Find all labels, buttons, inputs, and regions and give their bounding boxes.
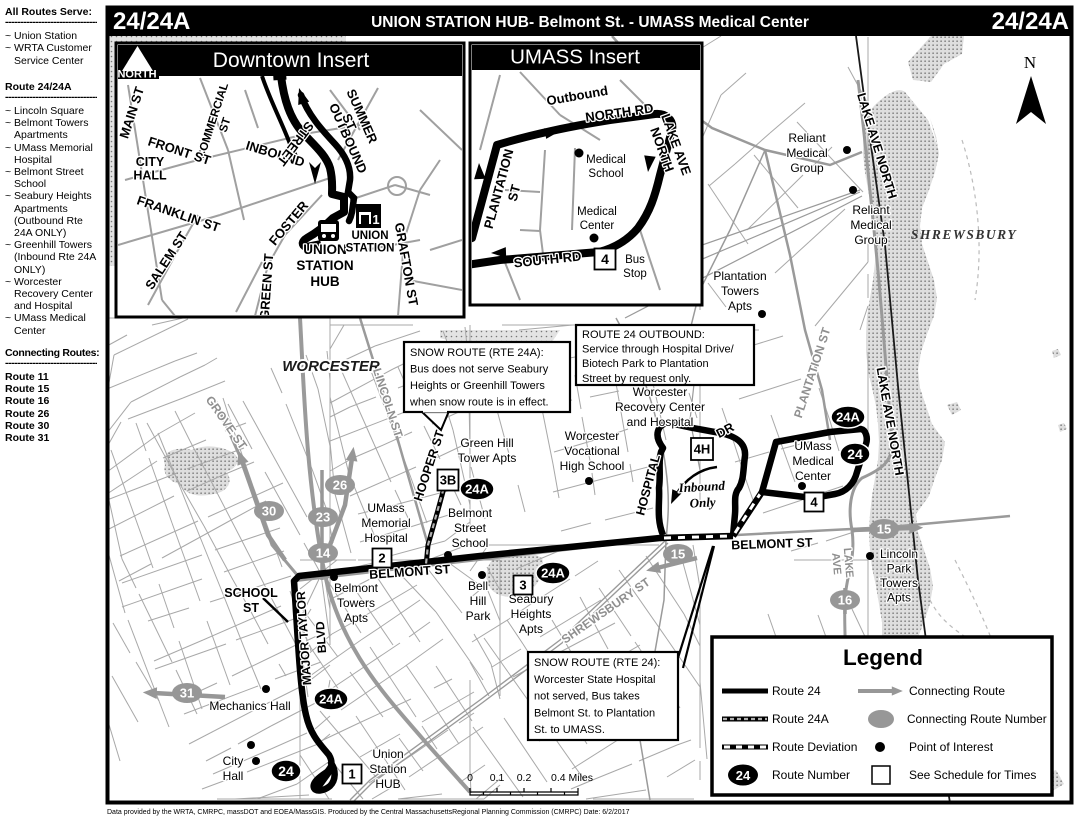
svg-text:3: 3 bbox=[519, 578, 526, 593]
svg-text:24: 24 bbox=[847, 446, 863, 462]
svg-text:0.1: 0.1 bbox=[490, 772, 505, 784]
svg-text:UMassMedicalCenter: UMassMedicalCenter bbox=[792, 439, 833, 483]
svg-text:Route 24A: Route 24A bbox=[772, 712, 829, 726]
svg-text:15: 15 bbox=[877, 522, 891, 537]
svg-text:23: 23 bbox=[316, 510, 330, 525]
svg-text:ReliantMedicalGroup: ReliantMedicalGroup bbox=[786, 131, 827, 175]
svg-text:WorcesterVocationalHigh School: WorcesterVocationalHigh School bbox=[560, 429, 625, 473]
svg-text:Route 24: Route 24 bbox=[772, 684, 821, 698]
svg-text:ReliantMedicalGroup: ReliantMedicalGroup bbox=[850, 203, 891, 247]
svg-text:24: 24 bbox=[736, 768, 751, 783]
svg-text:UNION STATION HUB- Belmont St.: UNION STATION HUB- Belmont St. - UMASS M… bbox=[371, 14, 809, 31]
svg-text:14: 14 bbox=[316, 546, 331, 561]
svg-text:Route Deviation: Route Deviation bbox=[772, 740, 857, 754]
svg-text:UNIONSTATION: UNIONSTATION bbox=[346, 230, 395, 255]
svg-text:24A: 24A bbox=[541, 566, 565, 581]
svg-text:Data provided by the WRTA, CMR: Data provided by the WRTA, CMRPC, massDO… bbox=[107, 809, 630, 816]
svg-text:4: 4 bbox=[601, 251, 609, 267]
svg-text:N: N bbox=[1024, 53, 1036, 72]
svg-text:26: 26 bbox=[333, 478, 347, 493]
svg-text:BLVD: BLVD bbox=[313, 621, 329, 654]
svg-text:24A: 24A bbox=[465, 482, 489, 497]
svg-text:CityHall: CityHall bbox=[223, 754, 244, 783]
svg-text:Point of Interest: Point of Interest bbox=[909, 740, 994, 754]
svg-text:31: 31 bbox=[180, 686, 194, 701]
svg-text:3B: 3B bbox=[440, 473, 457, 488]
svg-text:24/24A: 24/24A bbox=[992, 8, 1069, 35]
svg-text:BELMONT ST: BELMONT ST bbox=[731, 536, 813, 553]
svg-text:UMassMemorialHospital: UMassMemorialHospital bbox=[361, 501, 410, 545]
svg-text:16: 16 bbox=[838, 593, 852, 608]
svg-text:Route Number: Route Number bbox=[772, 768, 850, 782]
svg-text:1: 1 bbox=[348, 767, 355, 782]
svg-text:Green HillTower Apts: Green HillTower Apts bbox=[458, 436, 517, 465]
svg-text:Connecting Route: Connecting Route bbox=[909, 684, 1005, 698]
svg-text:0: 0 bbox=[467, 772, 473, 784]
svg-text:UMASS Insert: UMASS Insert bbox=[510, 46, 640, 69]
svg-text:24A: 24A bbox=[319, 692, 343, 707]
svg-text:Downtown Insert: Downtown Insert bbox=[213, 49, 370, 72]
svg-text:30: 30 bbox=[262, 504, 276, 519]
svg-text:Mechanics Hall: Mechanics Hall bbox=[209, 699, 290, 713]
svg-text:0.2: 0.2 bbox=[517, 772, 532, 784]
svg-text:CITYHALL: CITYHALL bbox=[133, 155, 167, 183]
svg-text:4H: 4H bbox=[694, 442, 711, 457]
svg-text:Legend: Legend bbox=[843, 645, 923, 670]
svg-text:4: 4 bbox=[810, 495, 818, 510]
svg-text:0.4 Miles: 0.4 Miles bbox=[551, 772, 593, 784]
svg-text:24/24A: 24/24A bbox=[113, 8, 190, 35]
svg-text:NORTH: NORTH bbox=[117, 69, 156, 81]
svg-text:15: 15 bbox=[671, 547, 685, 562]
svg-text:BelmontStreetSchool: BelmontStreetSchool bbox=[448, 506, 493, 550]
svg-text:WORCESTER: WORCESTER bbox=[282, 358, 380, 375]
svg-text:24A: 24A bbox=[836, 410, 860, 425]
svg-text:24: 24 bbox=[278, 763, 294, 779]
svg-text:1: 1 bbox=[372, 212, 379, 227]
svg-text:2: 2 bbox=[378, 551, 385, 566]
svg-text:See Schedule for Times: See Schedule for Times bbox=[909, 768, 1036, 782]
svg-text:Connecting Route Number: Connecting Route Number bbox=[907, 712, 1047, 726]
svg-text:SHREWSBURY: SHREWSBURY bbox=[911, 227, 1018, 242]
